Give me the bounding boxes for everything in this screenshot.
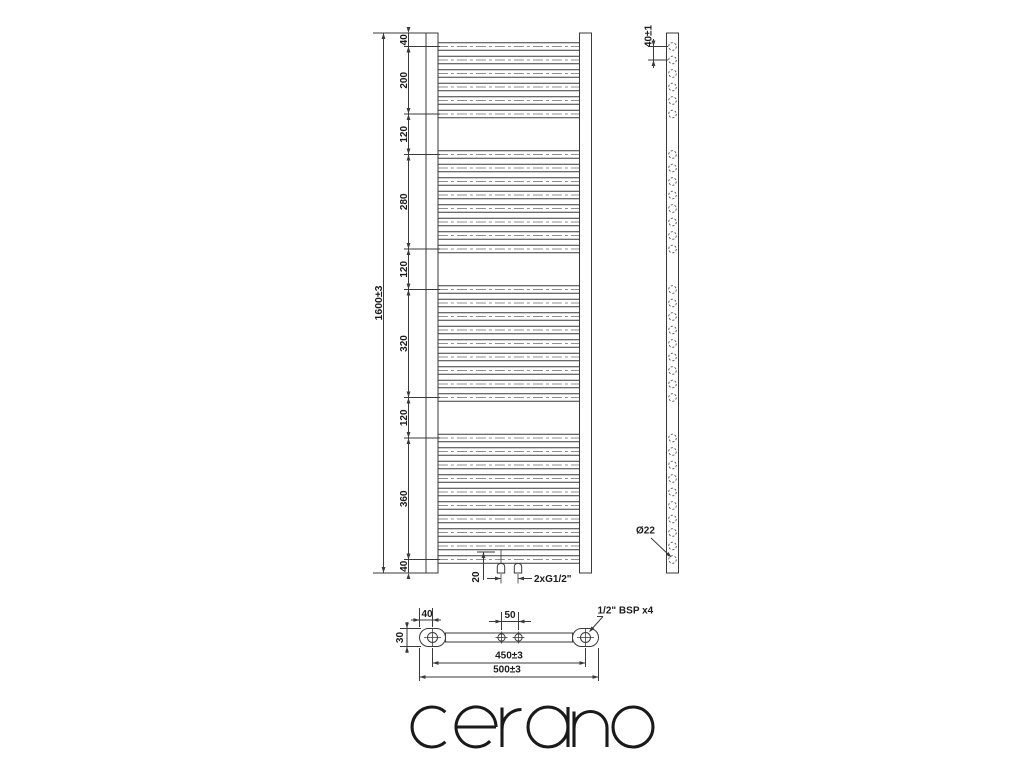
dim-segment-4: 120 [399,261,410,278]
dim-segment-7: 360 [399,490,410,507]
dim-segment-1: 200 [399,72,410,89]
label-rung-diameter: Ø22 [636,526,655,537]
dim-segment-6: 120 [399,409,410,426]
label-connection-thread: 2xG1/2" [534,574,572,585]
front-view: 1600±3 40 200 120 280 120 320 120 360 40… [373,27,592,585]
label-thread-note: 1/2" BSP x4 [598,606,654,617]
dim-edge-to-axis: 40 [421,609,433,620]
dim-segment-0: 40 [399,34,410,46]
dim-segment-2: 120 [399,126,410,143]
dim-segment-3: 280 [399,193,410,210]
dim-axis-distance: 450±3 [495,651,523,662]
dim-rung-pitch: 40±1 [644,24,655,47]
dim-depth: 30 [395,632,406,644]
dim-valve-spacing: 50 [504,610,516,621]
dim-connection-offset: 20 [471,571,482,583]
dim-segment-5: 320 [399,335,410,352]
brand-logo [412,707,653,747]
side-view-geometry [648,33,679,573]
technical-drawing-page: 1600±3 40 200 120 280 120 320 120 360 40… [0,0,1024,768]
dim-overall-width: 500±3 [493,665,521,676]
dim-overall-height: 1600±3 [373,285,385,320]
bottom-view: 40 50 30 450±3 500±3 1/2" BSP x4 [395,606,654,682]
dim-segment-8: 40 [399,560,410,572]
radiator-technical-drawing: 1600±3 40 200 120 280 120 320 120 360 40… [0,0,1024,768]
side-view: 40±1 Ø22 [636,24,679,573]
